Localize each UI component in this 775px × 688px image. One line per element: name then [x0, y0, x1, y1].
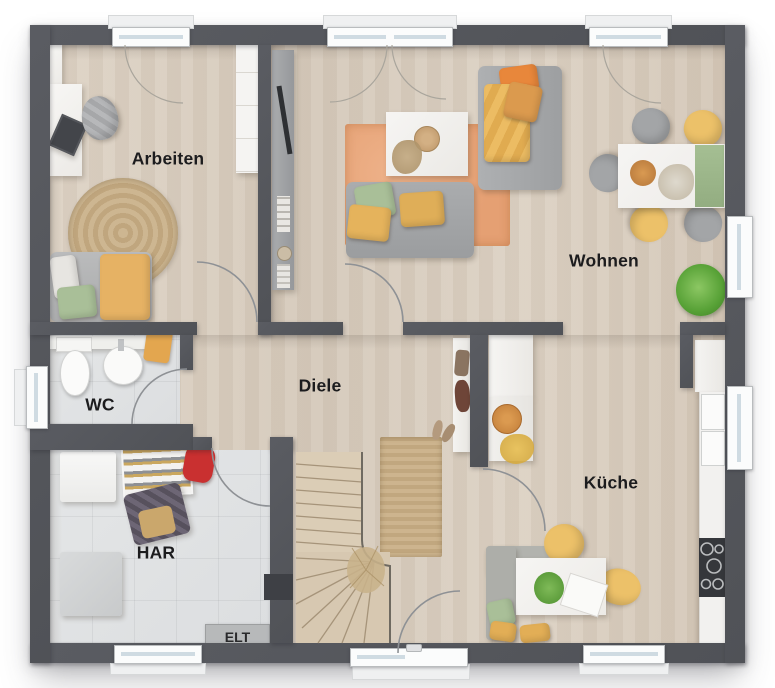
- sink-faucet: [118, 339, 124, 351]
- window-sill-bottom-2: [579, 663, 669, 675]
- window-bottom-har: [114, 645, 202, 664]
- sink: [103, 346, 143, 385]
- room-label-wc: WC: [85, 395, 115, 416]
- floor-plan-canvas: ELT: [0, 0, 775, 688]
- window-left-wc: [26, 366, 48, 429]
- bag-on-hook: [454, 349, 470, 376]
- door-glass: [357, 655, 405, 659]
- window-glass: [737, 224, 741, 290]
- window-glass: [590, 652, 658, 656]
- freezer-chest: [60, 552, 122, 616]
- fridge: [489, 335, 533, 397]
- toilet: [60, 350, 90, 396]
- wall-wc-right: [180, 335, 193, 370]
- window-glass: [34, 373, 38, 422]
- wall-arbeiten-bottom: [30, 322, 197, 335]
- bench-pillow-yellow-1: [489, 620, 517, 642]
- hallway-runner-rug: [380, 437, 442, 557]
- room-label-kueche: Küche: [584, 473, 638, 494]
- office-cabinet: [48, 42, 62, 88]
- door-handle: [406, 644, 422, 652]
- room-label-arbeiten: Arbeiten: [132, 149, 205, 170]
- daybed-throw-yellow: [100, 254, 150, 320]
- wall-kueche-stub: [680, 335, 693, 388]
- window-top-3: [589, 27, 668, 47]
- wall-exterior-right: [725, 25, 745, 663]
- sofa2-pillow-yellow-2: [399, 191, 445, 228]
- window-top-1: [112, 27, 190, 47]
- kitchen-sink-2: [701, 431, 725, 466]
- wall-wohnen-bottom-right: [680, 322, 725, 335]
- washing-machine: [60, 452, 116, 502]
- shading-top: [50, 45, 725, 60]
- kitchen-table-plant: [534, 572, 564, 604]
- wall-exterior-left: [30, 25, 50, 663]
- window-glass: [596, 35, 661, 39]
- wall-arbeiten-wohnen: [258, 45, 271, 335]
- sofa2-pillow-yellow: [346, 204, 391, 242]
- wall-har-top: [193, 437, 212, 450]
- chimney-block: [264, 574, 293, 600]
- wall-diele-kueche: [470, 335, 488, 467]
- entry-door: [350, 648, 468, 667]
- window-glass: [334, 35, 386, 39]
- room-label-har: HAR: [137, 543, 176, 564]
- window-glass: [119, 35, 183, 39]
- window-top-2-double: [327, 27, 453, 47]
- table-runner-green: [695, 145, 724, 207]
- fruit-basket: [492, 404, 522, 434]
- wall-wc-bottom: [30, 424, 193, 450]
- fruit-bowl: [630, 160, 656, 186]
- window-glass: [394, 35, 446, 39]
- potted-plant: [676, 264, 726, 316]
- room-label-wohnen: Wohnen: [569, 251, 639, 272]
- wall-wohnen-bottom-left: [258, 322, 343, 335]
- wall-har-right: [270, 437, 293, 643]
- wardrobe: [236, 40, 258, 173]
- wall-wohnen-bottom-mid: [403, 322, 563, 335]
- window-sill-bottom-1: [110, 663, 206, 675]
- bench-pillow-yellow-2: [519, 622, 551, 643]
- cooktop: [699, 538, 726, 597]
- books-stack-2: [277, 264, 290, 288]
- room-label-diele: Diele: [299, 376, 342, 397]
- window-bottom-kueche: [583, 645, 665, 664]
- books-stack: [277, 196, 290, 232]
- flower-deco: [658, 164, 694, 200]
- window-glass: [121, 652, 195, 656]
- window-right-wohnen: [727, 216, 753, 298]
- clock-deco: [277, 246, 292, 261]
- kitchen-sink-1: [701, 394, 725, 430]
- window-right-kueche: [727, 386, 753, 470]
- kitchen-tall-cabinet: [695, 340, 725, 392]
- daybed-pillow-green: [56, 284, 97, 320]
- window-glass: [737, 394, 741, 462]
